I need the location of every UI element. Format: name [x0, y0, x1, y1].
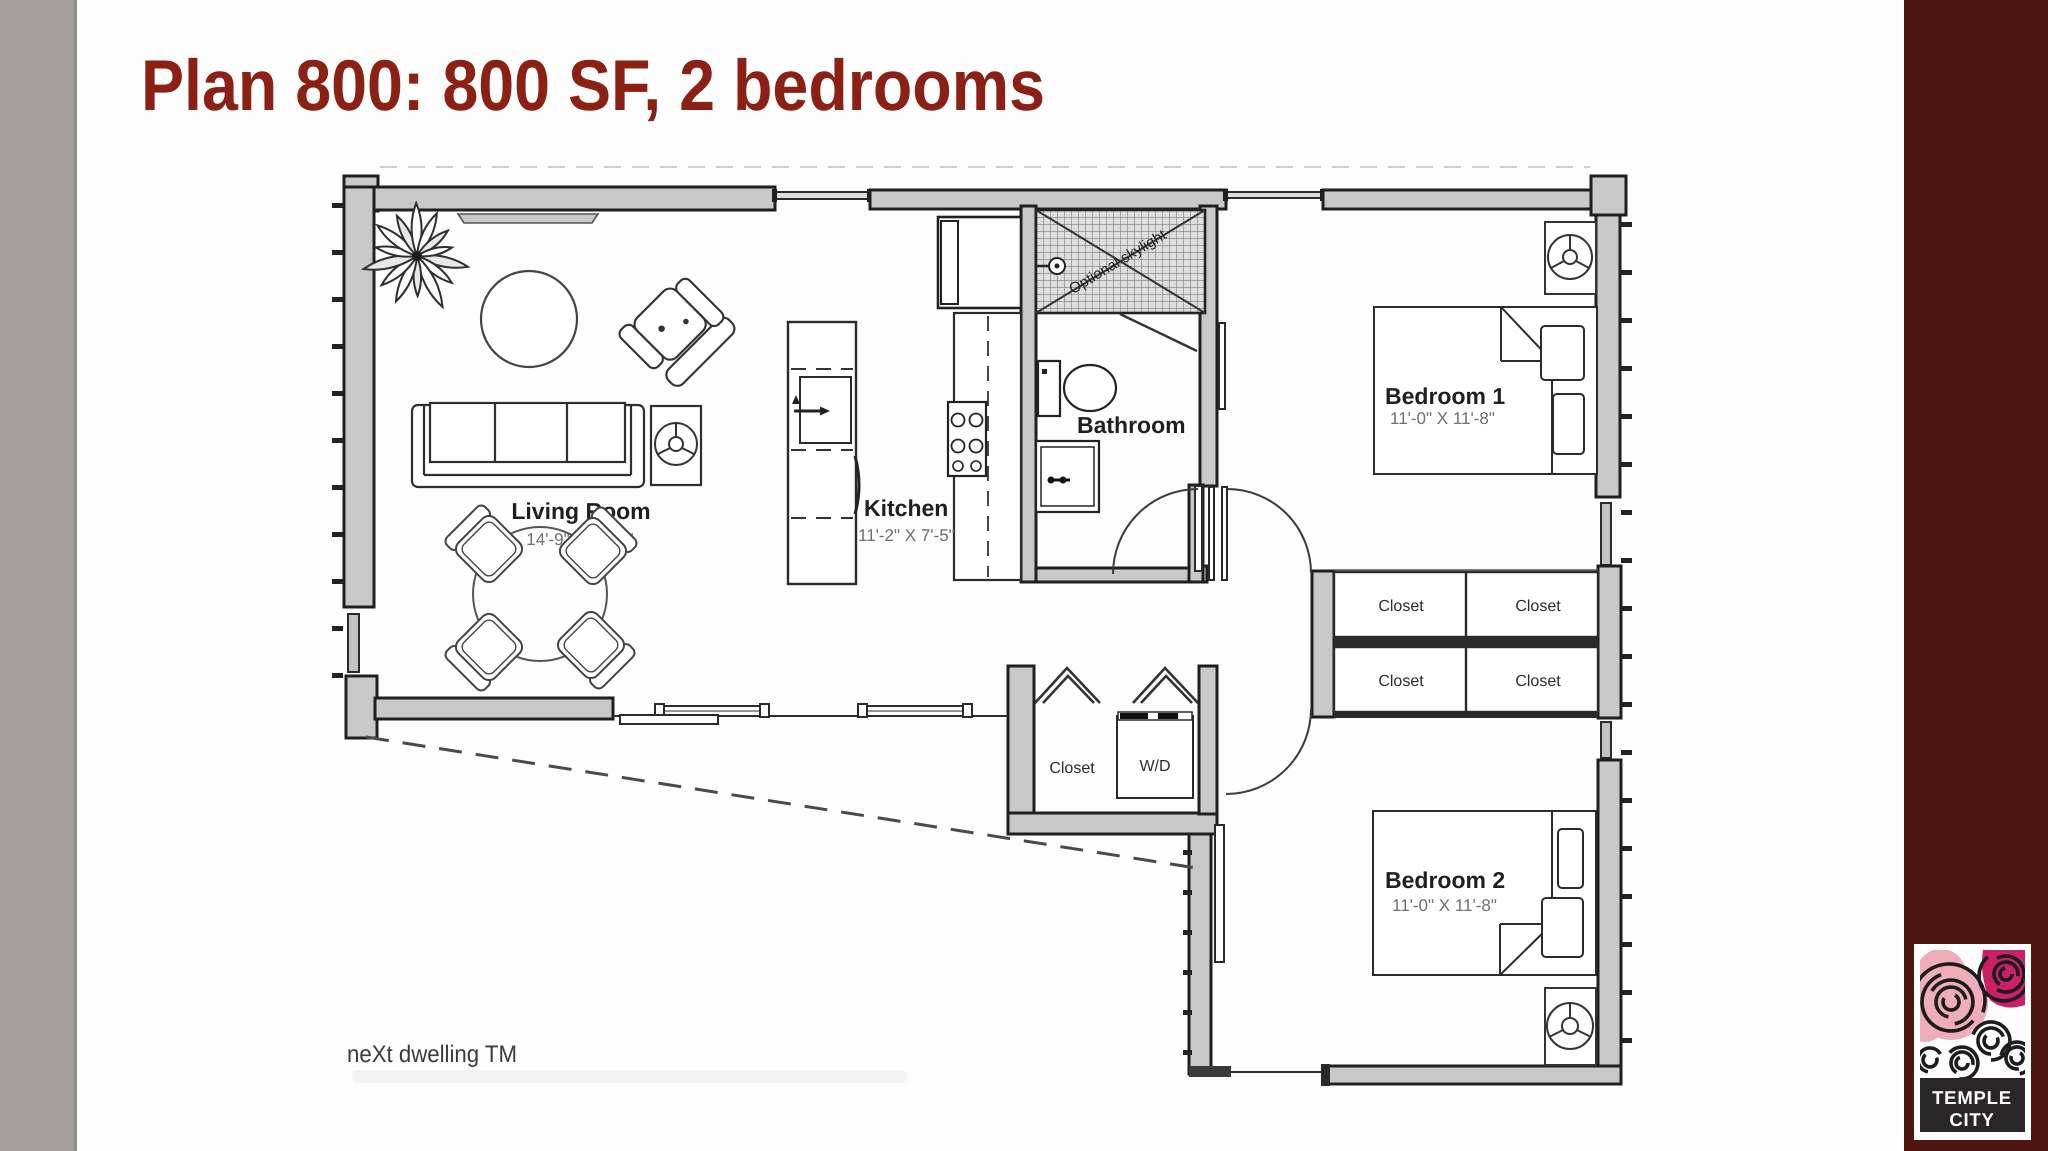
svg-text:Closet: Closet — [1515, 598, 1561, 615]
svg-text:Bedroom 2: Bedroom 2 — [1385, 867, 1505, 893]
svg-text:Closet: Closet — [1378, 598, 1424, 615]
svg-text:Bathroom: Bathroom — [1077, 412, 1186, 438]
svg-text:11'-2" X 7'-5": 11'-2" X 7'-5" — [858, 526, 955, 545]
svg-text:Closet: Closet — [1378, 673, 1424, 690]
svg-text:W/D: W/D — [1139, 758, 1170, 775]
svg-text:Kitchen: Kitchen — [864, 495, 948, 521]
svg-text:Plan 800: 800 SF, 2 bedrooms: Plan 800: 800 SF, 2 bedrooms — [141, 46, 1045, 126]
svg-text:Living Room: Living Room — [511, 498, 650, 524]
svg-text:11'-0" X 11'-8": 11'-0" X 11'-8" — [1392, 896, 1497, 915]
svg-text:CITY: CITY — [1949, 1109, 1994, 1130]
svg-text:Bedroom 1: Bedroom 1 — [1385, 383, 1505, 409]
svg-text:TEMPLE: TEMPLE — [1932, 1087, 2012, 1108]
svg-text:Closet: Closet — [1049, 760, 1095, 777]
svg-text:11'-0" X 11'-8": 11'-0" X 11'-8" — [1390, 409, 1495, 428]
svg-text:neXt dwelling TM: neXt dwelling TM — [347, 1041, 517, 1068]
svg-text:Closet: Closet — [1515, 673, 1561, 690]
